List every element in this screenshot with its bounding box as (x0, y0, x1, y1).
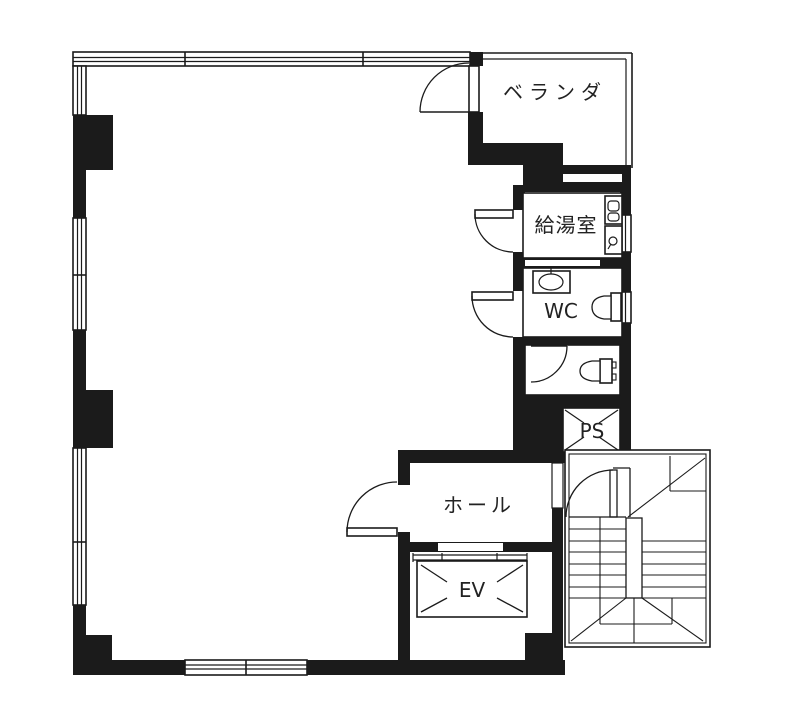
veranda-hatch-slit (563, 174, 622, 182)
room-label-wc: WC (544, 299, 578, 323)
wall-bottom (307, 660, 565, 675)
wall-segment (73, 330, 86, 390)
staircase (565, 450, 710, 647)
wall-segment (73, 605, 86, 640)
wall-segment (73, 170, 86, 218)
room-label-kitchenette: 給湯室 (535, 213, 598, 237)
band-slit (525, 260, 600, 266)
door-leaf (469, 66, 479, 112)
wall-block (525, 633, 563, 660)
stair-newel (626, 518, 642, 598)
wall-stair-left (552, 508, 563, 635)
door-leaf (472, 292, 513, 300)
room-label-hall: ホール (443, 493, 515, 517)
hall-stair-opening (552, 463, 563, 508)
wall-block (525, 408, 563, 452)
wall-bottom (73, 660, 185, 675)
toilet-icon (580, 359, 616, 383)
sink-icon (605, 196, 622, 224)
window-band-top (73, 52, 470, 66)
room-label-ps: PS (580, 419, 605, 443)
room-label-veranda: ベランダ (503, 80, 607, 104)
wall-veranda (468, 143, 563, 165)
elevator-door-opening (438, 543, 503, 551)
door-leaf (475, 210, 513, 218)
window-bottom (185, 660, 307, 675)
door-leaf (347, 528, 397, 536)
faucet-icon (605, 226, 622, 254)
floor-plan: ベランダ 給湯室 WC PS ホール EV (0, 0, 787, 707)
floor-plan-page: ベランダ 給湯室 WC PS ホール EV (0, 0, 787, 707)
door-leaf (610, 470, 617, 517)
cistern-icon (533, 267, 570, 293)
wall-column (73, 115, 113, 170)
wall-column (73, 390, 113, 448)
room-label-ev: EV (459, 578, 486, 602)
hall-door-opening (398, 485, 410, 532)
wc2-room (525, 345, 620, 395)
wall-band (513, 395, 631, 408)
